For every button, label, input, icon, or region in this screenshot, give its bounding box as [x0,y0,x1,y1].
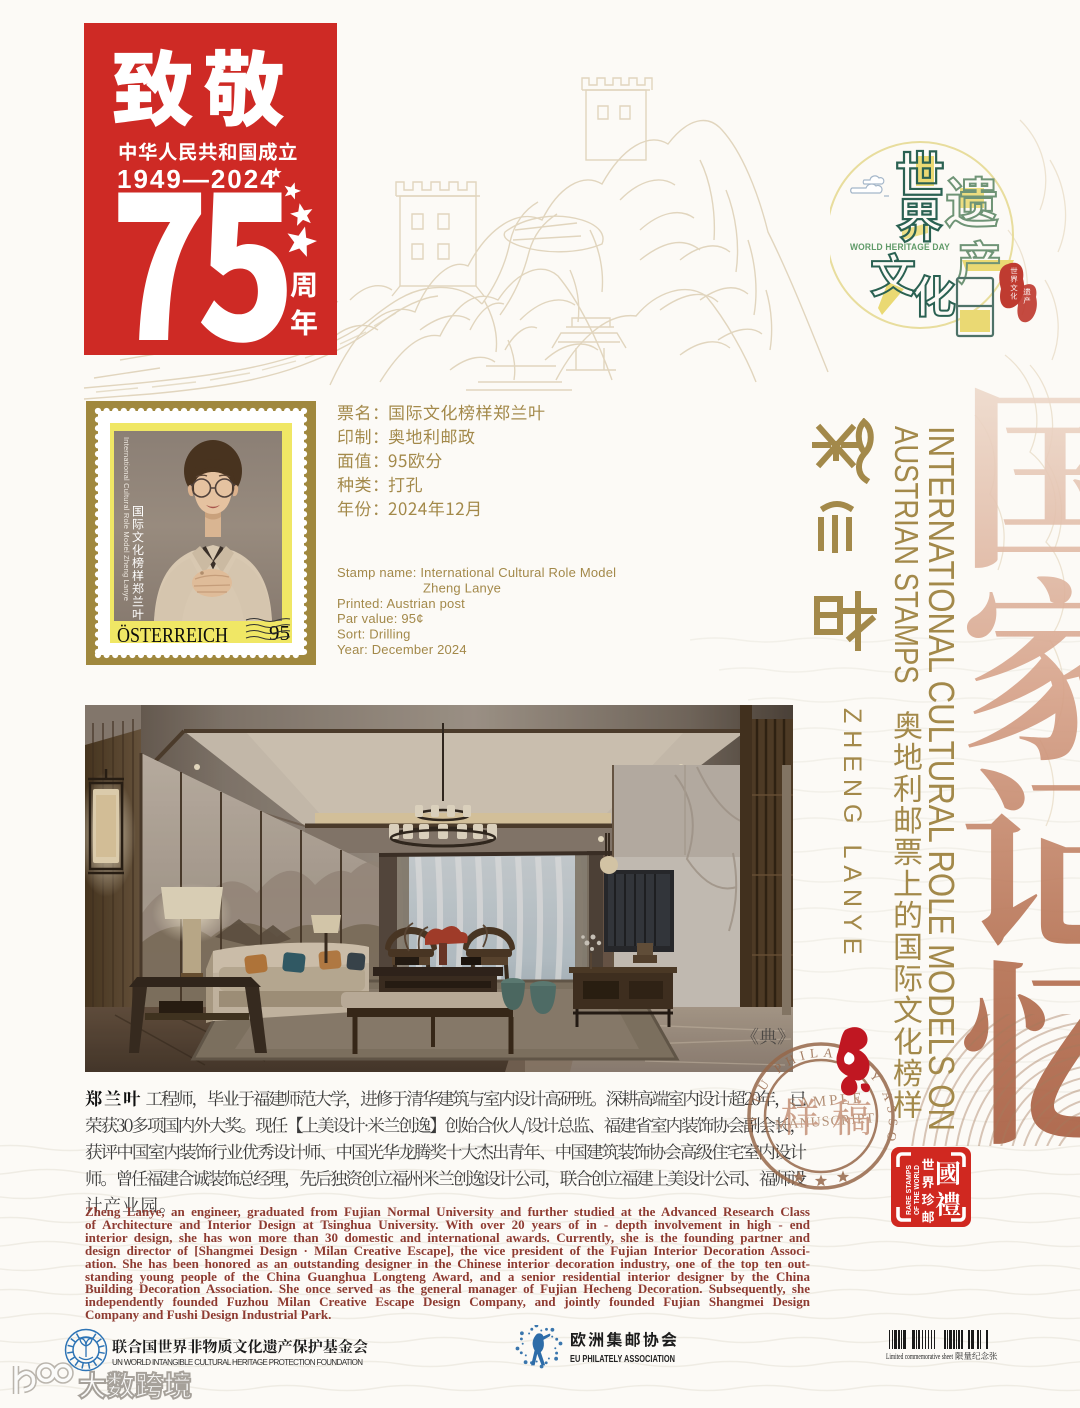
svg-text:ÖSTERREICH: ÖSTERREICH [117,623,228,647]
svg-text:International Cultural Role Mo: International Cultural Role Model Zheng … [122,437,131,601]
svg-text:Zheng Lanye: Zheng Lanye [423,580,501,595]
svg-text:RARE STAMPS: RARE STAMPS [906,1165,913,1215]
svg-text:Sort: Drilling: Sort: Drilling [337,627,411,642]
svg-text:OF THE WORLD: OF THE WORLD [914,1165,921,1215]
svg-text:WORLD HERITAGE DAY: WORLD HERITAGE DAY [850,242,950,252]
svg-text:Year: December 2024: Year: December 2024 [337,642,467,657]
svg-text:Printed: Austrian post: Printed: Austrian post [337,596,465,611]
svg-text:Stamp name: International Cult: Stamp name: International Cultural Role … [337,565,616,580]
svg-text:Par value: 95¢: Par value: 95¢ [337,611,424,626]
svg-text:Limited commemorative sheet: Limited commemorative sheet [886,1352,954,1361]
svg-text:1949—2024: 1949—2024 [117,164,277,194]
svg-text:EU PHILATELY ASSOCIATION: EU PHILATELY ASSOCIATION [570,1353,675,1365]
